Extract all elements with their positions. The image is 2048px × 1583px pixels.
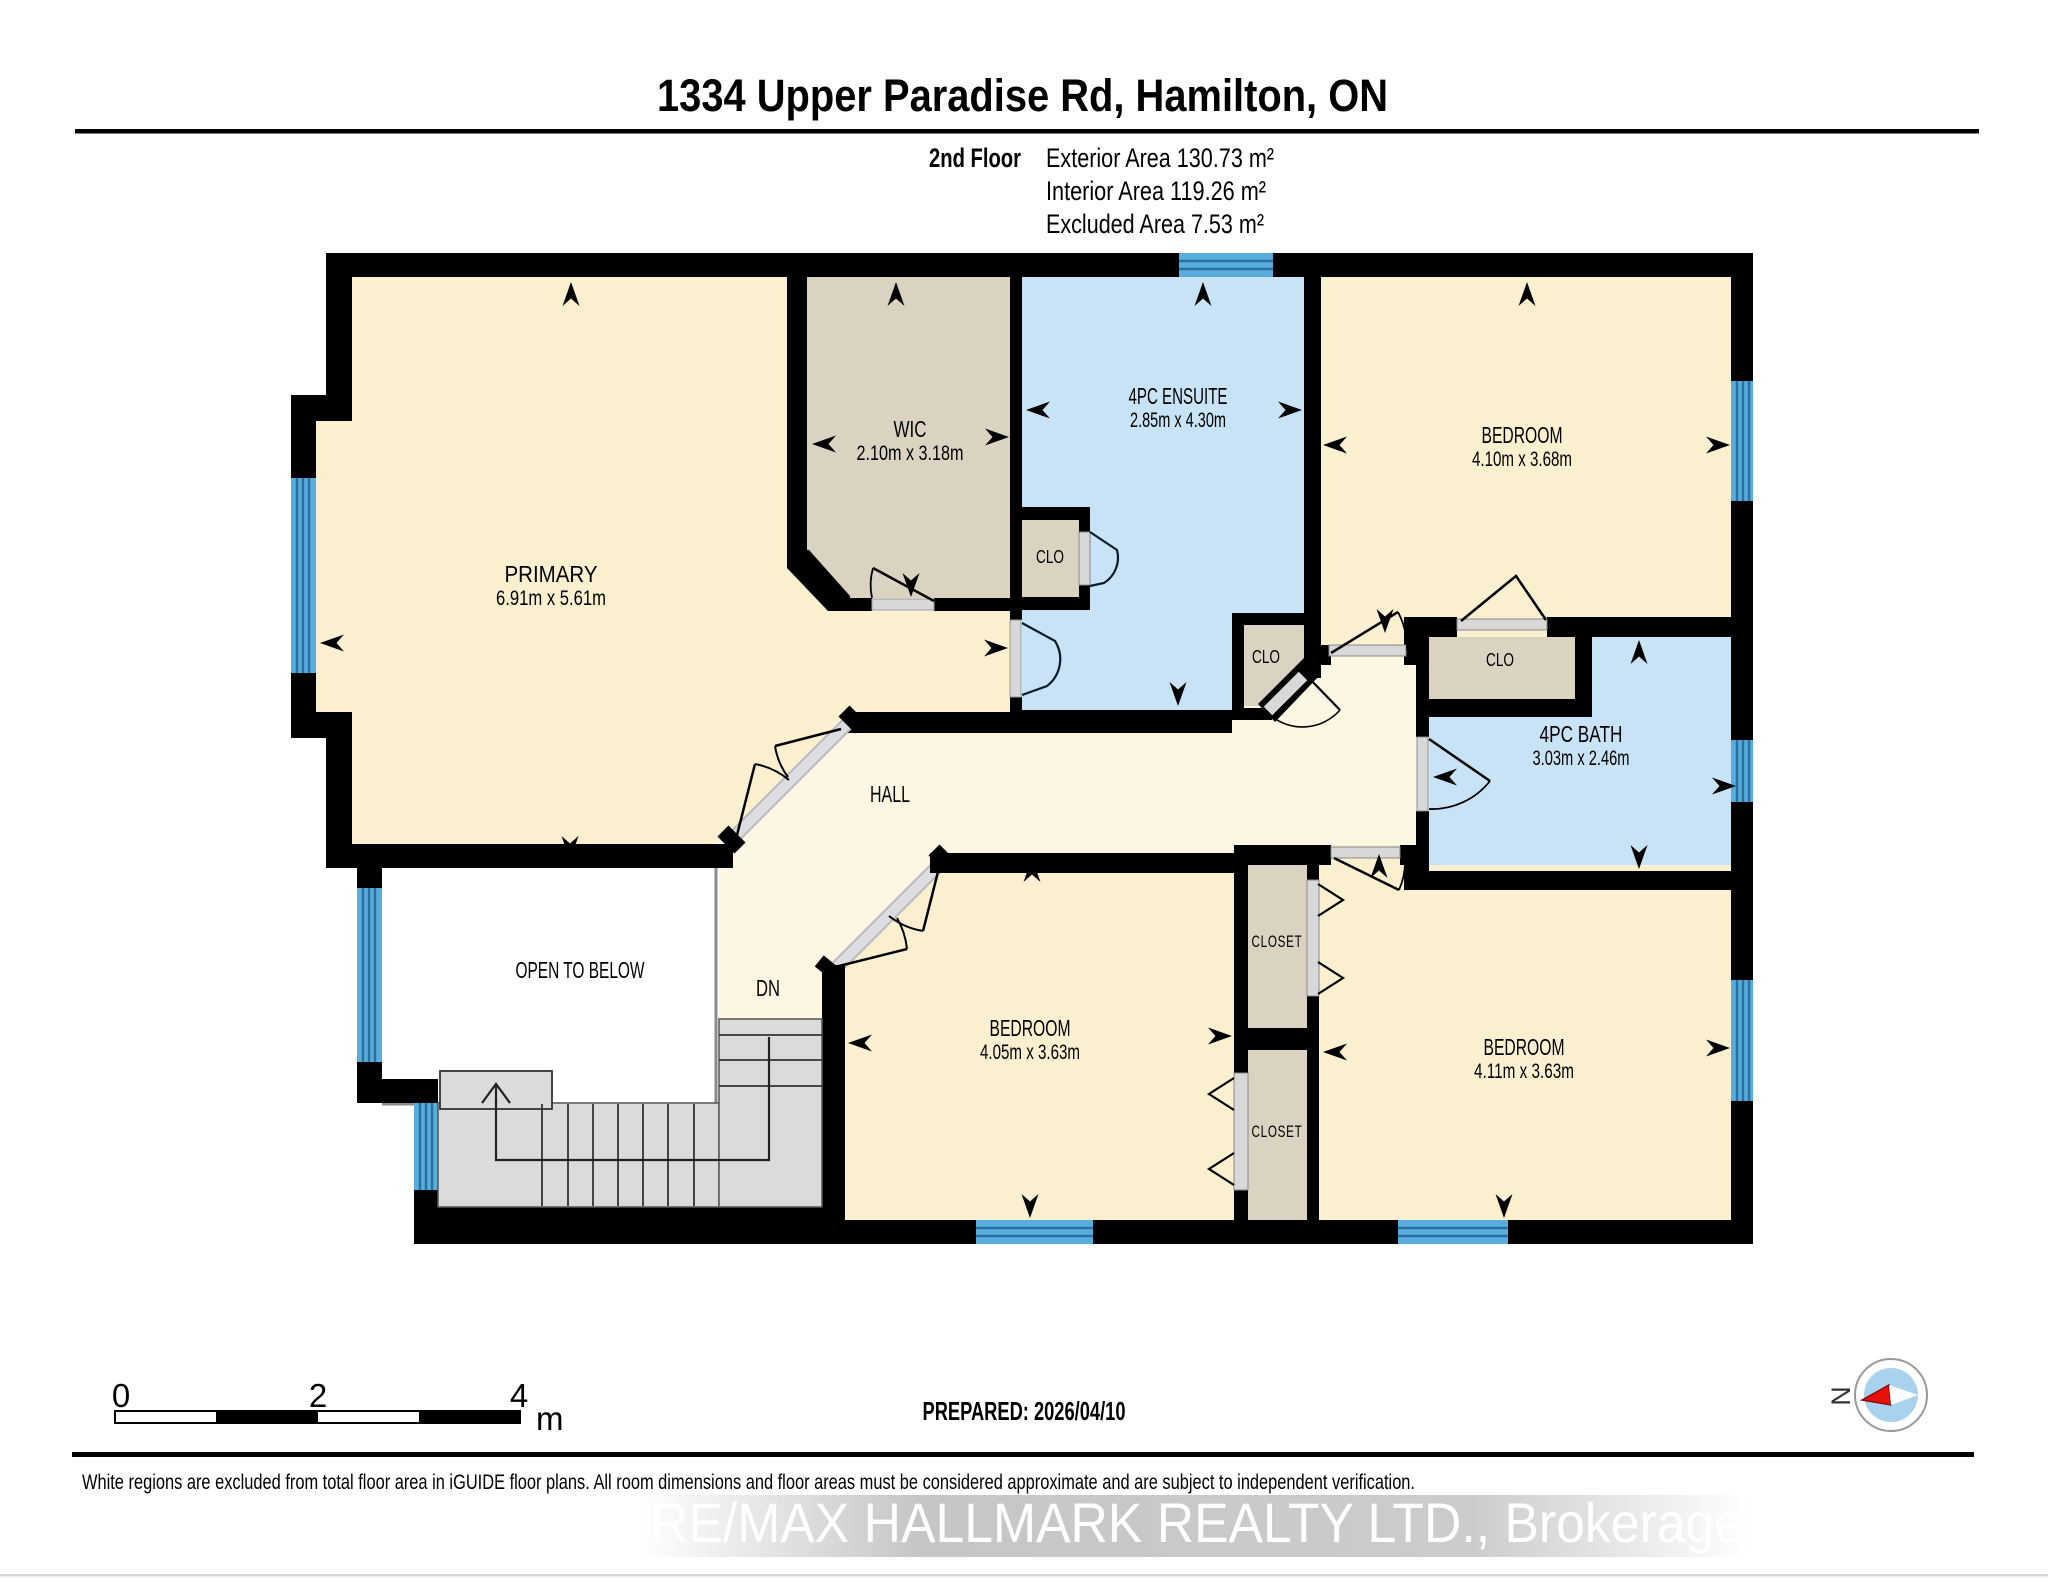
svg-text:HALL: HALL — [870, 781, 910, 807]
svg-text:BEDROOM: BEDROOM — [1482, 422, 1563, 448]
svg-text:0: 0 — [112, 1377, 130, 1414]
svg-text:Exterior Area 130.73 m²: Exterior Area 130.73 m² — [1046, 143, 1274, 173]
svg-text:4PC BATH: 4PC BATH — [1540, 721, 1623, 747]
svg-text:CLO: CLO — [1036, 547, 1064, 567]
svg-text:2: 2 — [309, 1377, 327, 1414]
svg-text:4.05m x 3.63m: 4.05m x 3.63m — [980, 1041, 1080, 1064]
svg-text:N: N — [1826, 1386, 1856, 1406]
svg-text:WIC: WIC — [894, 416, 927, 442]
svg-text:PRIMARY: PRIMARY — [505, 561, 598, 587]
svg-text:m: m — [536, 1400, 564, 1437]
svg-text:4.11m x 3.63m: 4.11m x 3.63m — [1474, 1060, 1574, 1083]
svg-text:CLO: CLO — [1486, 650, 1514, 670]
svg-text:CLOSET: CLOSET — [1252, 932, 1303, 951]
svg-text:2.10m x 3.18m: 2.10m x 3.18m — [857, 442, 964, 465]
svg-text:2.85m x 4.30m: 2.85m x 4.30m — [1130, 409, 1226, 432]
svg-text:4.10m x 3.68m: 4.10m x 3.68m — [1472, 448, 1572, 471]
svg-text:Interior Area 119.26 m²: Interior Area 119.26 m² — [1046, 176, 1266, 206]
svg-text:OPEN TO BELOW: OPEN TO BELOW — [516, 957, 645, 983]
svg-text:BEDROOM: BEDROOM — [1484, 1034, 1565, 1060]
svg-text:Excluded Area 7.53 m²: Excluded Area 7.53 m² — [1046, 209, 1264, 239]
svg-text:1334 Upper Paradise Rd, Hamilt: 1334 Upper Paradise Rd, Hamilton, ON — [657, 70, 1388, 121]
svg-text:4PC ENSUITE: 4PC ENSUITE — [1129, 383, 1228, 409]
svg-text:RE/MAX HALLMARK REALTY LTD., B: RE/MAX HALLMARK REALTY LTD., Brokerage — [651, 1491, 1743, 1554]
svg-text:CLOSET: CLOSET — [1252, 1122, 1303, 1141]
svg-text:DN: DN — [756, 975, 780, 1001]
svg-text:3.03m x 2.46m: 3.03m x 2.46m — [1533, 747, 1630, 770]
svg-text:BEDROOM: BEDROOM — [990, 1015, 1071, 1041]
svg-text:6.91m x 5.61m: 6.91m x 5.61m — [496, 587, 606, 610]
svg-text:4: 4 — [510, 1377, 528, 1414]
svg-text:2nd Floor: 2nd Floor — [929, 143, 1021, 173]
svg-text:CLO: CLO — [1252, 647, 1280, 667]
svg-text:PREPARED: 2026/04/10: PREPARED: 2026/04/10 — [923, 1396, 1126, 1426]
